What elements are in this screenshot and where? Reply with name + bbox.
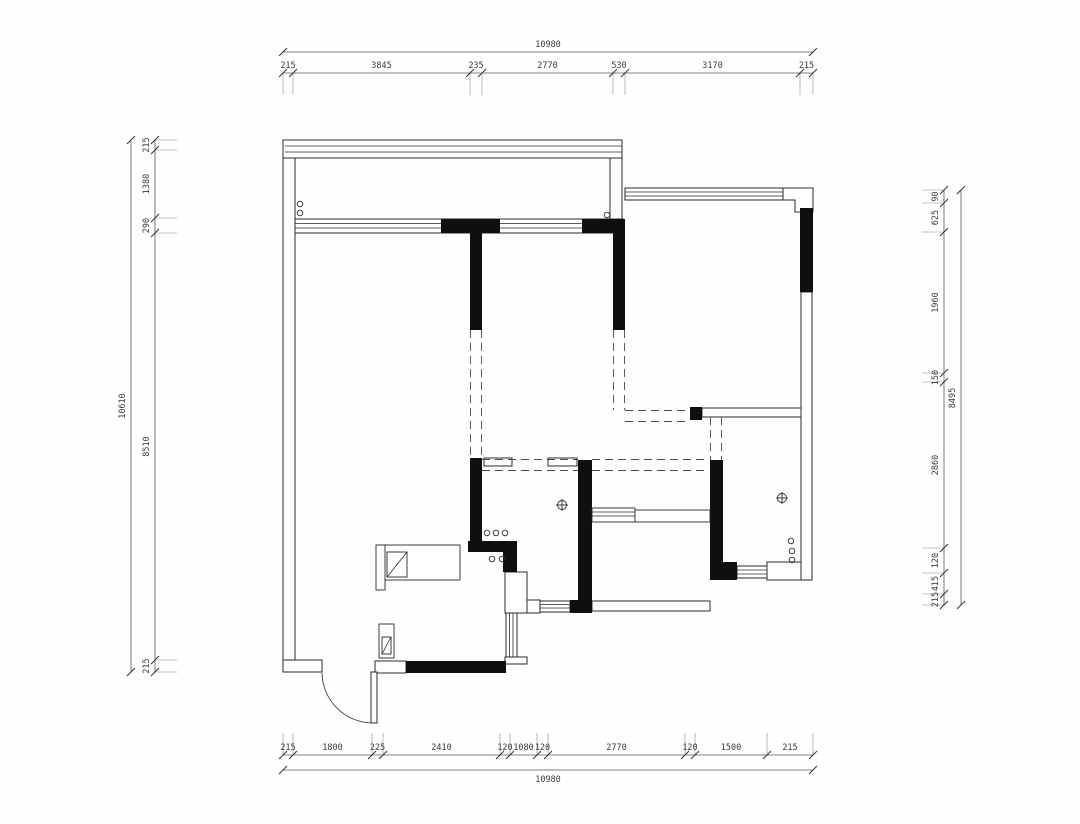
bathroom-top-wall <box>702 408 801 417</box>
hinge-dot-icon <box>604 212 610 218</box>
hinge-dot-icon <box>489 556 495 562</box>
dimension-label: 2860 <box>931 455 941 475</box>
balcony-window <box>283 140 622 158</box>
outer-walls <box>283 140 813 723</box>
hidden-lines <box>471 330 722 471</box>
kitchen-column <box>505 572 527 613</box>
dimension-label: 225 <box>370 743 385 753</box>
wardrobe <box>592 508 635 522</box>
dimension-label: 2770 <box>537 61 557 71</box>
floor-plan-sheet: 2153845235277053031702151098021518002252… <box>0 0 1080 824</box>
kitchen-window <box>506 613 517 657</box>
dimension-label: 150 <box>931 370 941 385</box>
kitchen-sill <box>505 657 527 664</box>
dimension-label: 1500 <box>721 743 741 753</box>
bathroom-window <box>737 566 767 578</box>
dimension-label: 530 <box>611 61 626 71</box>
dimension-label: 215 <box>782 743 797 753</box>
dimension-label: 3845 <box>371 61 391 71</box>
dimension-label: 120 <box>497 743 512 753</box>
dimension-label: 8510 <box>142 436 152 456</box>
middle-room-bottom-wall <box>592 601 710 611</box>
hinge-dot-icon <box>789 548 795 554</box>
entry-threshold <box>375 661 406 673</box>
dimension-label: 235 <box>468 61 483 71</box>
wall-bottom-left <box>283 660 322 672</box>
balcony-right-wall <box>610 158 622 219</box>
bathroom-sill <box>767 562 801 580</box>
wall-left <box>283 140 295 672</box>
dimension-label: 90 <box>931 191 941 201</box>
dimension-label: 215 <box>799 61 814 71</box>
hinge-dot-icon <box>493 530 499 536</box>
furniture <box>376 508 710 658</box>
wall-right <box>801 292 812 580</box>
dimension-label: 10610 <box>118 393 128 419</box>
dimension-label: 2410 <box>431 743 451 753</box>
hinge-dot-icon <box>297 201 303 207</box>
dimension-label: 10980 <box>535 775 561 785</box>
dimension-label: 215 <box>280 743 295 753</box>
dimension-label: 120 <box>682 743 697 753</box>
dimension-label: 215 <box>931 592 941 607</box>
dimension-label: 215 <box>142 137 152 152</box>
entry-door-leaf <box>371 672 377 723</box>
dimension-label: 625 <box>931 210 941 225</box>
ceiling-fixture-icon <box>776 492 788 504</box>
hinge-dot-icon <box>297 210 303 216</box>
dimension-label: 120 <box>931 553 941 568</box>
hinge-dot-icon <box>484 530 490 536</box>
dimension-label: 10980 <box>535 40 561 50</box>
dimension-label: 290 <box>142 218 152 233</box>
ceiling-fixture-icon <box>556 499 568 511</box>
dimension-label: 8495 <box>948 388 958 408</box>
floor-plan-drawing: 2153845235277053031702151098021518002252… <box>0 0 1080 824</box>
entry-door-swing <box>322 673 373 723</box>
hinge-dot-icon <box>502 530 508 536</box>
dimension-label: 1800 <box>322 743 342 753</box>
dimension-label: 120 <box>535 743 550 753</box>
dimension-label: 1080 <box>513 743 533 753</box>
hinge-dot-icon <box>788 538 794 544</box>
dimension-label: 1380 <box>142 174 152 194</box>
dimension-label: 2770 <box>606 743 626 753</box>
middle-window <box>540 601 570 612</box>
dimension-label: 215 <box>142 658 152 673</box>
bedroom-window <box>625 188 783 200</box>
dimension-label: 415 <box>931 576 941 591</box>
dimension-label: 3170 <box>702 61 722 71</box>
dimension-label: 215 <box>280 61 295 71</box>
counter <box>635 510 710 522</box>
door-swings <box>322 673 373 723</box>
dimension-label: 1960 <box>931 292 941 312</box>
